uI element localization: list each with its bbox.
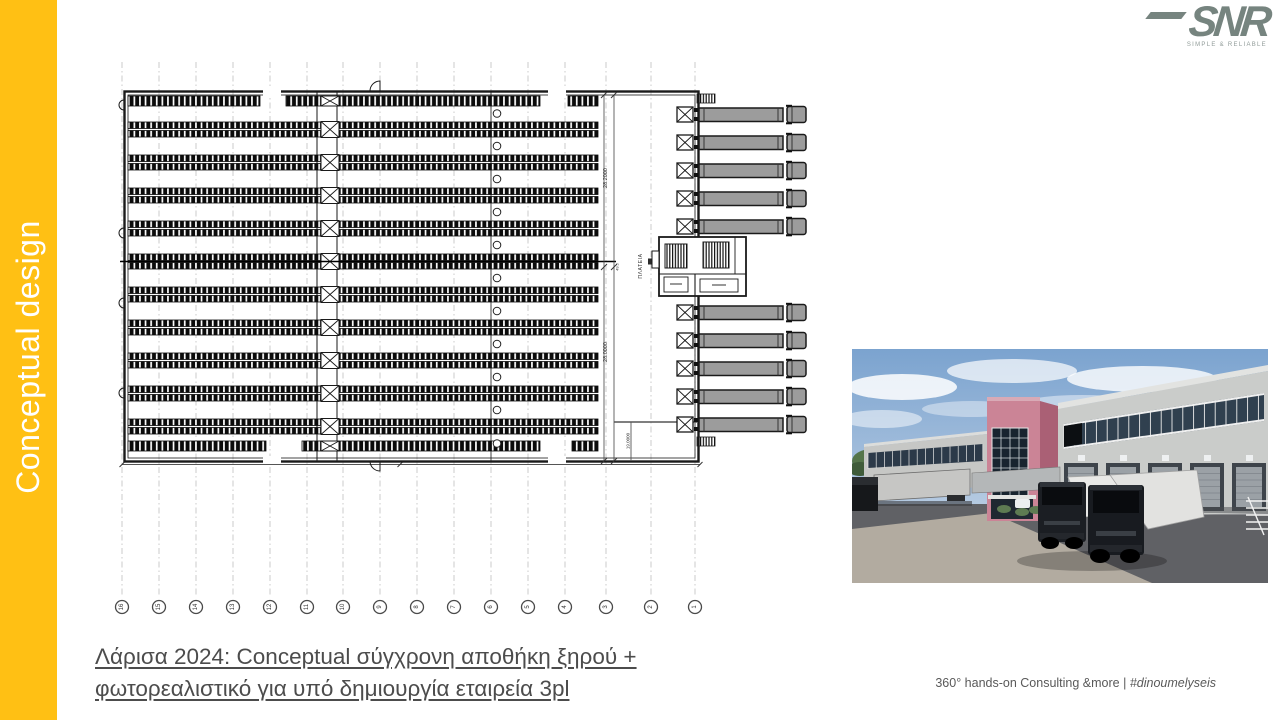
svg-text:10: 10 (340, 603, 346, 610)
svg-text:13: 13 (230, 603, 236, 610)
svg-text:12: 12 (267, 603, 273, 610)
svg-text:28.2000: 28.2000 (603, 168, 609, 188)
svg-text:28.0000: 28.0000 (603, 342, 609, 362)
logo-text: SNR (1187, 2, 1270, 43)
svg-text:19.0000: 19.0000 (626, 432, 631, 449)
svg-text:11: 11 (304, 603, 310, 610)
slide-title: Λάρισα 2024: Conceptual σύγχρονη αποθήκη… (95, 641, 705, 705)
slide-canvas: Conceptual design SNR SIMPLE & RELIABLE … (0, 0, 1280, 720)
svg-text:14: 14 (193, 603, 199, 610)
sidebar-label: Conceptual design (6, 207, 50, 507)
warehouse-floorplan-drawing: 1615141312111098765432128.200028.000049.… (55, 50, 845, 630)
footer-hashtag: #dinoumelyseis (1130, 676, 1216, 690)
footer-credit: 360° hands-on Consulting &more | #dinoum… (935, 676, 1216, 690)
svg-text:15: 15 (156, 603, 162, 610)
warehouse-render-photo (852, 349, 1268, 583)
logo-swoosh (1145, 12, 1186, 19)
svg-text:49.5: 49.5 (615, 262, 620, 271)
svg-text:16: 16 (119, 603, 125, 610)
title-line1: Λάρισα 2024: Conceptual σύγχρονη αποθήκη… (95, 644, 637, 669)
title-line2: φωτορεαλιστικό για υπό δημιουργία εταιρε… (95, 676, 569, 701)
snr-logo: SNR SIMPLE & RELIABLE (1142, 2, 1272, 58)
svg-text:ΠΛΑΤΕΙΑ: ΠΛΑΤΕΙΑ (638, 253, 644, 278)
footer-text: 360° hands-on Consulting &more | (935, 676, 1129, 690)
sidebar-conceptual-design: Conceptual design (0, 0, 57, 720)
